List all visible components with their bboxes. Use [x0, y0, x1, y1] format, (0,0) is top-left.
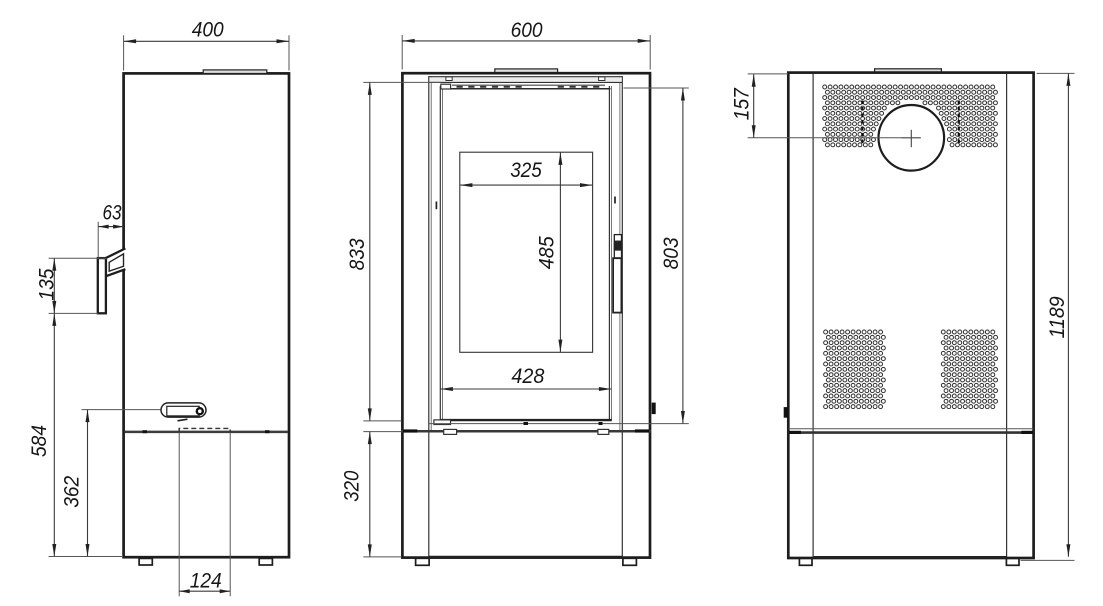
svg-text:584: 584 — [28, 425, 51, 457]
svg-text:124: 124 — [190, 570, 222, 593]
svg-text:600: 600 — [511, 19, 543, 42]
svg-text:833: 833 — [346, 238, 369, 270]
svg-text:428: 428 — [511, 365, 544, 388]
svg-text:400: 400 — [192, 18, 224, 41]
svg-text:135: 135 — [35, 268, 58, 300]
svg-text:63: 63 — [103, 201, 122, 224]
svg-text:320: 320 — [341, 470, 364, 501]
svg-text:325: 325 — [510, 159, 542, 182]
svg-text:157: 157 — [731, 87, 754, 120]
svg-text:803: 803 — [660, 237, 683, 269]
svg-text:362: 362 — [60, 476, 83, 508]
svg-text:485: 485 — [536, 236, 559, 269]
svg-text:1189: 1189 — [1046, 296, 1069, 338]
